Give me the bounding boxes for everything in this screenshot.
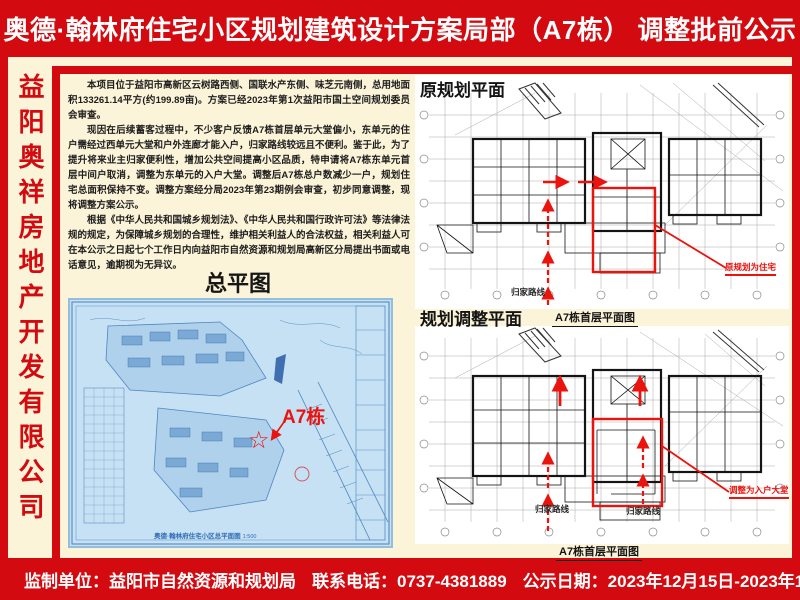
adjusted-plan-caption: A7栋首层平面图 (556, 543, 642, 561)
original-plan-heading: 原规划平面 (420, 76, 505, 101)
building-label-a7: A7栋 (282, 402, 325, 429)
star-icon: ☆ (248, 429, 270, 453)
drawing-scale: 1:500 (243, 534, 257, 540)
adjusted-plan-heading: 规划调整平面 (420, 305, 522, 330)
vertical-divider (52, 66, 60, 558)
footer-supervisor: 监制单位：益阳市自然资源和规划局 (24, 567, 296, 592)
company-name: 益阳奥祥房地产开发有限公司 (8, 73, 52, 558)
original-annotation-label: 原规划为住宅 (725, 261, 776, 276)
site-plan-heading: 总平图 (62, 266, 414, 298)
notice-paragraph: 本项目位于益阳市高新区云树路西侧、国联水产东侧、味芝元南侧，总用地面积13326… (68, 78, 410, 123)
site-plan-blueprint (70, 300, 391, 546)
notice-paragraph: 现因在后续蓄客过程中，不少客户反馈A7栋首层单元大堂偏小，东单元的住户需经过西单… (68, 123, 410, 213)
footer-bar: 监制单位：益阳市自然资源和规划局 联系电话：0737-4381889 公示日期：… (0, 558, 800, 600)
original-floor-plan: 归家路线 原规划为住宅 (415, 75, 789, 309)
seal-stamp-icon (295, 467, 309, 481)
site-plan-drawing: ☆ A7栋 奥德·翰林府住宅小区总平面图1:500 (68, 298, 393, 548)
title-bar: 奥德·翰林府住宅小区规划建筑设计方案局部（A7栋） 调整批前公示 (0, 0, 800, 57)
pond-shape (274, 354, 286, 384)
route-label: 归家路线 (535, 503, 569, 515)
footer-date: 公示日期：2023年12月15日-2023年12月25日 (523, 567, 800, 592)
annotation-leader-line (662, 446, 729, 492)
site-plan-drawing-title: 奥德·翰林府住宅小区总平面图1:500 (154, 530, 256, 540)
adjusted-floor-plan: 归家路线 归家路线 调整为入户大堂 (415, 326, 789, 544)
footer-phone: 联系电话：0737-4381889 (312, 567, 507, 592)
supervisor-label: 监制单位： (24, 572, 109, 591)
route-label: 归家路线 (511, 286, 545, 298)
drawing-title-text: 奥德·翰林府住宅小区总平面图 (154, 533, 241, 540)
phone-label: 联系电话： (312, 572, 397, 591)
adjusted-annotation-label: 调整为入户大堂 (729, 484, 789, 499)
original-plan-caption: A7栋首层平面图 (552, 309, 638, 327)
route-label: 归家路线 (626, 505, 660, 517)
supervisor-value: 益阳市自然资源和规划局 (109, 572, 296, 591)
date-value: 2023年12月15日-2023年12月25日 (608, 572, 800, 591)
highlight-box-adjusted (593, 419, 662, 506)
adjusted-floor-plan-drawing (415, 326, 789, 544)
page-title: 奥德·翰林府住宅小区规划建筑设计方案局部（A7栋） 调整批前公示 (3, 10, 796, 47)
horizontal-divider (52, 66, 792, 74)
company-sidebar: 益阳奥祥房地产开发有限公司 (8, 57, 52, 558)
notice-paragraph: 根据《中华人民共和国城乡规划法》、《中华人民共和国行政许可法》等法律法规的规定，… (68, 213, 410, 273)
phone-value: 0737-4381889 (397, 572, 507, 591)
notice-text: 本项目位于益阳市高新区云树路西侧、国联水产东侧、味芝元南侧，总用地面积13326… (68, 78, 410, 273)
annotation-leader-line (655, 225, 726, 268)
route-arrows-original (543, 182, 726, 305)
date-label: 公示日期： (523, 572, 608, 591)
